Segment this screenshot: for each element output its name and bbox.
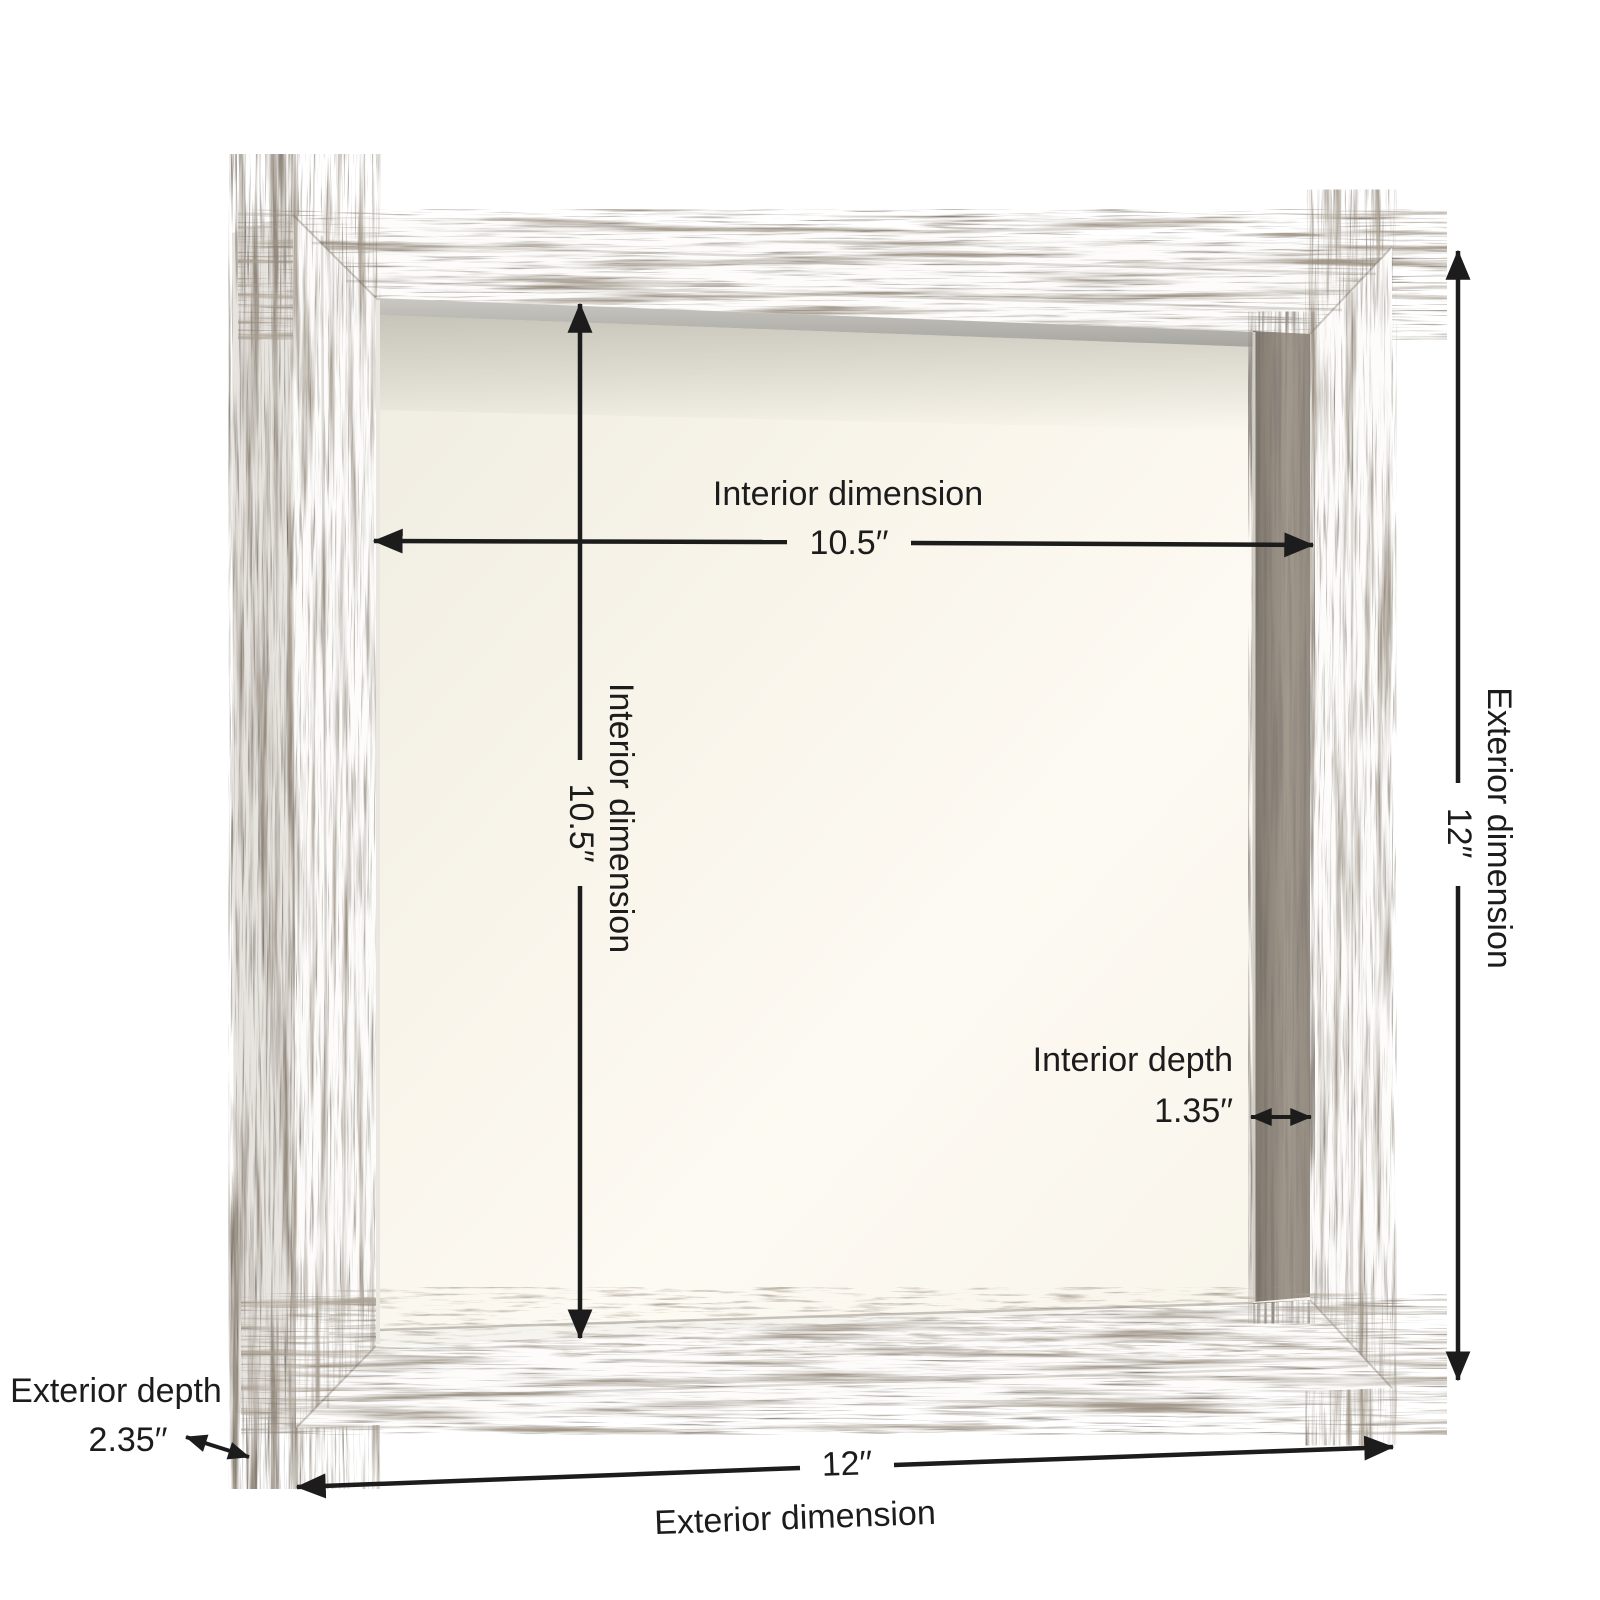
exterior-depth-dimension: Exterior depth 2.35′′	[10, 1372, 249, 1459]
product-dimension-diagram: Interior dimension 10.5′′ Interior dimen…	[0, 0, 1600, 1600]
exterior-width-arrow-left	[297, 1468, 800, 1487]
exterior-width-label: Exterior dimension	[654, 1494, 937, 1542]
interior-height-label: Interior dimension	[602, 683, 640, 953]
exterior-depth-label: Exterior depth	[10, 1372, 222, 1410]
exterior-height-dimension: Exterior dimension 12′′	[1440, 251, 1518, 1380]
interior-depth-label: Interior depth	[1033, 1041, 1233, 1079]
interior-width-value: 10.5′′	[810, 524, 889, 562]
frame-dimension-figure: Interior dimension 10.5′′ Interior dimen…	[0, 0, 1600, 1600]
exterior-width-value: 12′′	[821, 1444, 873, 1484]
frame-side-panel-shading	[232, 215, 296, 1428]
interior-width-arrow-right	[911, 543, 1313, 545]
interior-height-value: 10.5′′	[562, 784, 600, 863]
exterior-depth-arrow	[186, 1437, 249, 1457]
interior-backing	[376, 298, 1310, 1346]
exterior-width-arrow-right	[894, 1447, 1393, 1465]
exterior-width-dimension: 12′′ Exterior dimension	[297, 1444, 1393, 1542]
frame-left-rail	[293, 215, 376, 1428]
interior-width-label: Interior dimension	[713, 475, 983, 513]
interior-right-wall-shading	[1253, 331, 1310, 1304]
exterior-height-label: Exterior dimension	[1480, 687, 1518, 969]
exterior-height-value: 12′′	[1440, 808, 1478, 859]
exterior-depth-value: 2.35′′	[89, 1421, 168, 1459]
interior-depth-value: 1.35′′	[1154, 1092, 1233, 1130]
shadow-box-frame	[232, 215, 1392, 1428]
